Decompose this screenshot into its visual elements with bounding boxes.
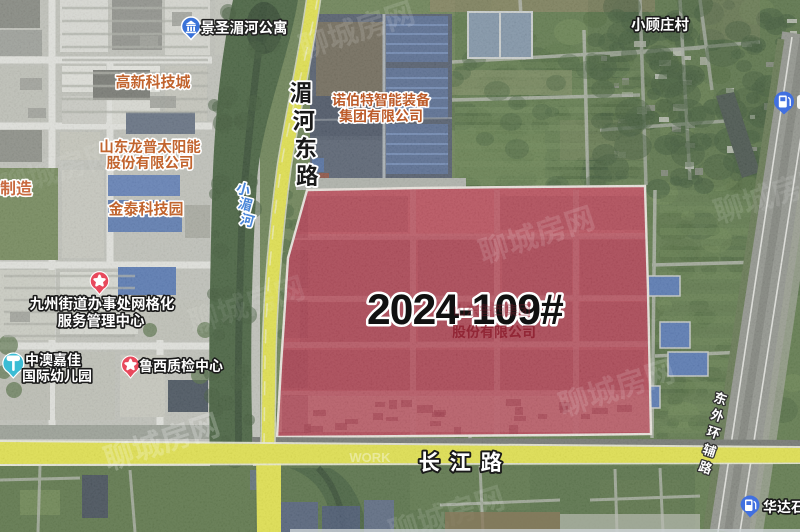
svg-text:华达石油: 华达石油	[763, 499, 800, 515]
svg-text:湄: 湄	[290, 81, 313, 106]
svg-text:国际幼儿园: 国际幼儿园	[22, 368, 92, 384]
svg-text:股份有限公司: 股份有限公司	[452, 324, 536, 340]
svg-text:集团有限公司: 集团有限公司	[339, 108, 423, 124]
svg-text:股份有限公司: 股份有限公司	[107, 155, 194, 172]
svg-text:诺伯特智能装备: 诺伯特智能装备	[332, 92, 430, 108]
svg-text:长江路: 长江路	[418, 451, 511, 475]
svg-text:九州街道办事处网格化: 九州街道办事处网格化	[30, 295, 175, 313]
svg-text:WORK: WORK	[349, 450, 391, 465]
svg-text:服务管理中心: 服务管理中心	[58, 312, 145, 330]
svg-text:小顾庄村: 小顾庄村	[631, 16, 689, 34]
svg-text:路: 路	[296, 164, 319, 189]
svg-text:中澳嘉佳: 中澳嘉佳	[25, 352, 81, 368]
svg-text:鲁西质检中心: 鲁西质检中心	[139, 358, 223, 374]
svg-text:山东鲁西集团: 山东鲁西集团	[453, 303, 531, 318]
svg-text:河: 河	[293, 109, 316, 134]
svg-text:金泰科技园: 金泰科技园	[108, 200, 183, 218]
svg-text:制造: 制造	[0, 180, 32, 198]
svg-text:景圣湄河公寓: 景圣湄河公寓	[201, 19, 288, 37]
svg-text:东: 东	[294, 137, 317, 162]
svg-text:高新科技城: 高新科技城	[115, 73, 190, 91]
svg-text:山东龙普太阳能: 山东龙普太阳能	[99, 138, 201, 156]
